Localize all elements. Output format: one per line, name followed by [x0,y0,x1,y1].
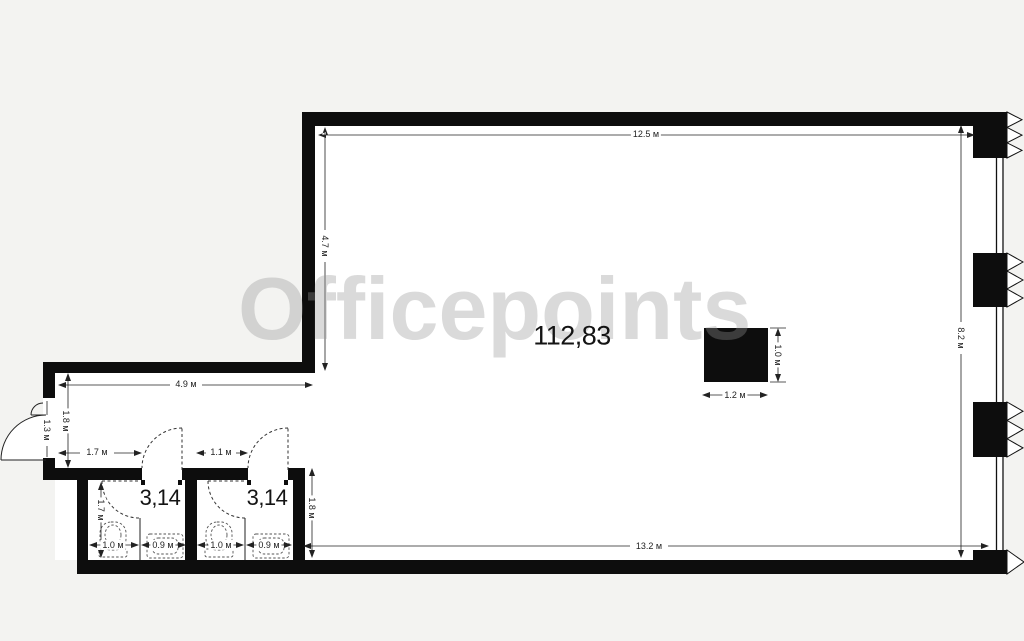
zigzag-icon [1007,112,1022,158]
dim-wc1-door-offset: 1.7 м [84,447,109,457]
dim-bottom-width: 13.2 м [634,541,664,551]
wall-wc-middle [185,468,197,574]
facade-zigzag-markers [1007,112,1024,574]
wall-left-stub-upper [43,373,55,398]
entry-door-small-arc [31,403,43,415]
wall-wc-right [293,468,305,574]
dim-right-height: 8.2 м [956,325,966,350]
wall-bottom [77,560,1007,574]
wall-corridor-a [43,468,142,480]
dim-lower-section-height: 1.8 м [307,495,317,520]
wall-wc-left [77,468,88,574]
dim-wc1-toilet-width: 1.0 м [100,540,125,550]
window-pier-2 [973,253,1007,307]
floor-plan-page: 12.5 м 4.7 м 8.2 м 4.9 м 1.8 м 1.3 м 1.7… [0,0,1024,641]
dim-vestibule-height: 1.8 м [61,408,71,433]
dim-column-width: 1.2 м [722,390,747,400]
dim-wc2-sink-width: 0.9 м [256,540,281,550]
dim-entry-door-width: 1.3 м [42,417,52,442]
dim-top-width: 12.5 м [631,129,661,139]
dim-upper-left-height: 4.7 м [320,233,330,258]
main-room-area-label: 112,83 [533,323,611,350]
wall-jog [43,362,315,373]
zigzag-icon [1007,253,1023,307]
zigzag-icon [1007,402,1023,457]
watermark-text: Officepoints [238,265,751,353]
dim-column-height: 1.0 м [773,342,783,367]
window-pier-3 [973,402,1007,457]
wall-corner-block [973,550,1007,562]
dim-vestibule-width: 4.9 м [173,379,198,389]
wc2-area-label: 3,14 [247,487,288,509]
dim-wc1-sink-width: 0.9 м [150,540,175,550]
zigzag-icon [1007,550,1024,574]
wall-top [302,112,1007,126]
dim-wc2-door-offset: 1.1 м [208,447,233,457]
window-pier-1 [973,112,1007,158]
dim-wc1-depth: 1.7 м [96,497,106,522]
dim-wc2-toilet-width: 1.0 м [208,540,233,550]
wc1-area-label: 3,14 [140,487,181,509]
